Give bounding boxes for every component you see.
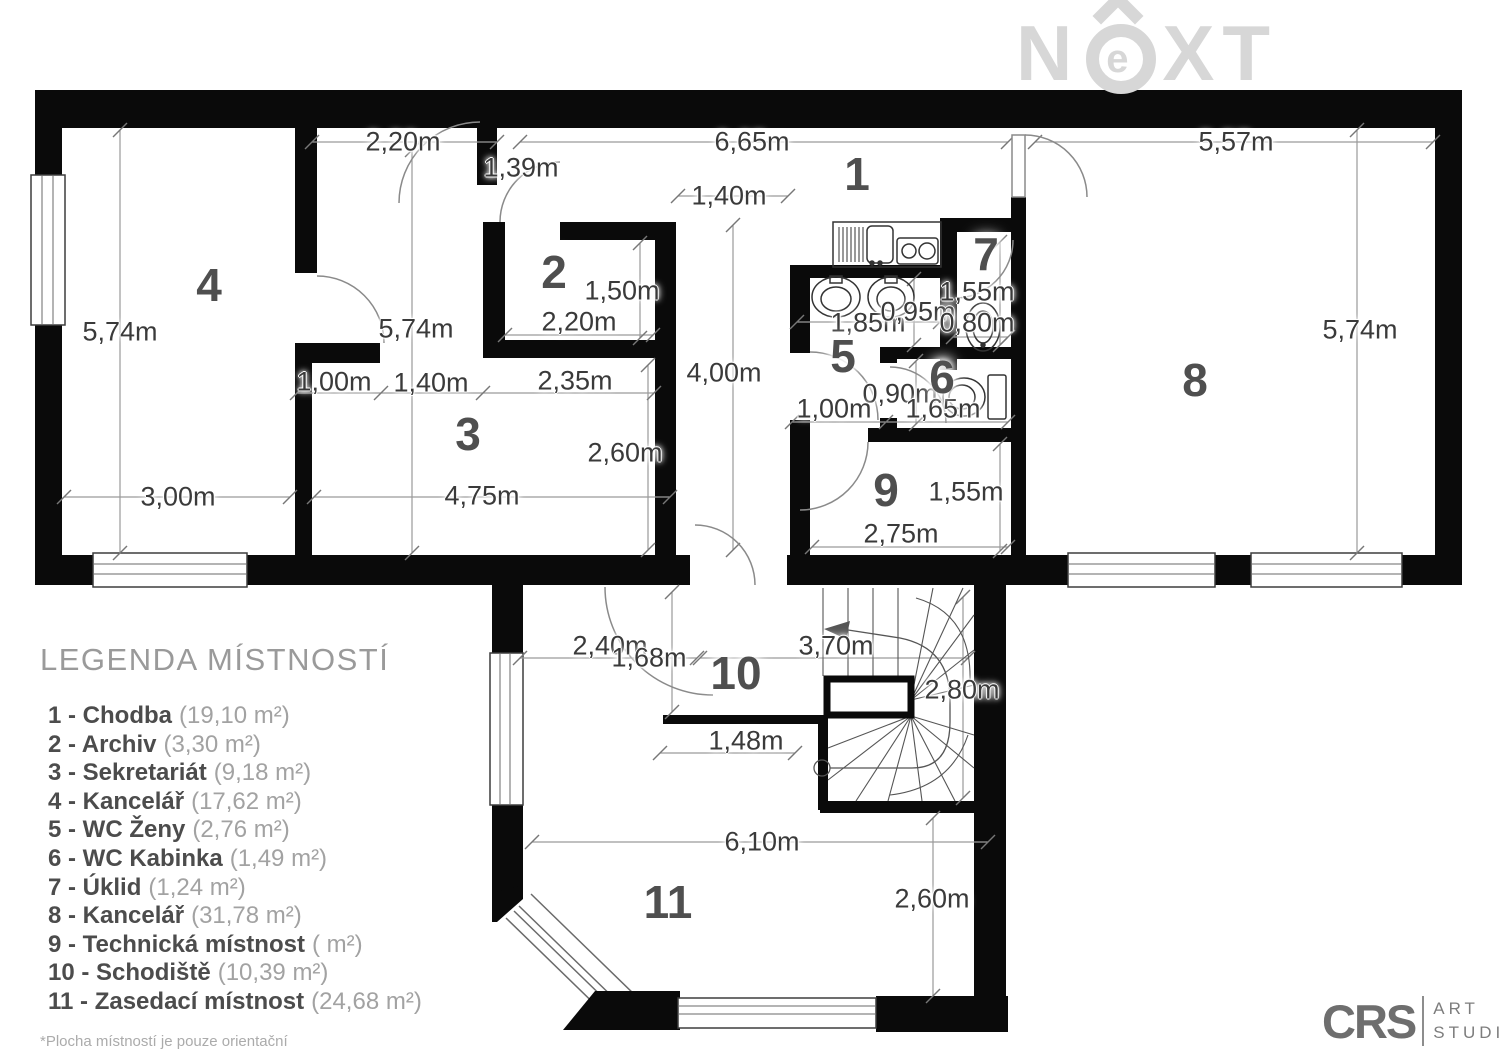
utility-sink-icon: [966, 303, 1000, 351]
legend-item-area: (24,68 m²): [311, 988, 422, 1015]
legend-item: 3 - Sekretariát(9,18 m²): [48, 759, 422, 788]
toilet-icon: [943, 375, 1006, 419]
legend-item: 7 - Úklid(1,24 m²): [48, 874, 422, 903]
next-circle-e-icon: e: [1086, 24, 1156, 94]
next-logo-e-mark: e: [1086, 24, 1156, 94]
legend-item: 2 - Archiv(3,30 m²): [48, 731, 422, 760]
next-watermark-logo: N e XT: [1016, 14, 1278, 92]
legend-item-label: 10 - Schodiště: [48, 959, 211, 986]
next-logo-xt: XT: [1162, 14, 1278, 92]
legend-item-area: (10,39 m²): [218, 959, 329, 986]
legend-item-label: 7 - Úklid: [48, 874, 141, 901]
legend-item-label: 1 - Chodba: [48, 702, 172, 729]
legend-item-area: ( m²): [312, 931, 363, 958]
legend-item: 5 - WC Ženy(2,76 m²): [48, 816, 422, 845]
outer-walls: [35, 90, 1462, 585]
crs-art-studio-logo: CRS ART STUDIO: [1322, 996, 1500, 1046]
door-swings: [317, 122, 1087, 695]
legend-item-label: 4 - Kancelář: [48, 788, 184, 815]
washbasin-icons: [812, 276, 914, 317]
legend-item-label: 11 - Zasedací místnost: [48, 988, 304, 1015]
legend-item: 6 - WC Kabinka(1,49 m²): [48, 845, 422, 874]
legend-item: 1 - Chodba(19,10 m²): [48, 702, 422, 731]
next-logo-n: N: [1016, 14, 1080, 92]
legend-item-area: (9,18 m²): [214, 759, 311, 786]
legend-item-area: (1,24 m²): [148, 874, 245, 901]
legend-item-area: (19,10 m²): [179, 702, 290, 729]
legend-item-area: (2,76 m²): [192, 816, 289, 843]
interior-walls: [295, 128, 1026, 555]
legend-item-label: 8 - Kancelář: [48, 902, 184, 929]
kitchen-unit-icon: [833, 222, 941, 267]
crs-logo-divider: [1422, 996, 1424, 1046]
legend-item-area: (3,30 m²): [163, 731, 260, 758]
legend-item-label: 2 - Archiv: [48, 731, 156, 758]
legend-item: 8 - Kancelář(31,78 m²): [48, 902, 422, 931]
crs-logo-text: CRS: [1322, 998, 1415, 1045]
legend: LEGENDA MÍSTNOSTÍ 1 - Chodba(19,10 m²) 2…: [40, 642, 422, 1050]
legend-item-area: (31,78 m²): [191, 902, 302, 929]
legend-footnote: *Plocha místností je pouze orientační: [40, 1033, 422, 1050]
crs-logo-art: ART: [1433, 997, 1500, 1021]
floor-plan-page: 2,20m1,39m6,65m1,40m5,57m5,74m5,74m5,74m…: [0, 0, 1500, 1060]
legend-items: 1 - Chodba(19,10 m²) 2 - Archiv(3,30 m²)…: [48, 702, 422, 1017]
legend-item: 9 - Technická místnost( m²): [48, 931, 422, 960]
staircase: [823, 588, 974, 801]
crs-logo-studio: STUDIO: [1433, 1021, 1500, 1045]
legend-item: 4 - Kancelář(17,62 m²): [48, 788, 422, 817]
legend-item-area: (1,49 m²): [230, 845, 327, 872]
legend-item-label: 5 - WC Ženy: [48, 816, 185, 843]
legend-item-label: 3 - Sekretariát: [48, 759, 207, 786]
legend-title: LEGENDA MÍSTNOSTÍ: [40, 642, 422, 678]
crs-logo-subtext: ART STUDIO: [1433, 997, 1500, 1045]
legend-item: 10 - Schodiště(10,39 m²): [48, 959, 422, 988]
legend-item-label: 6 - WC Kabinka: [48, 845, 223, 872]
legend-item-area: (17,62 m²): [191, 788, 302, 815]
legend-item: 11 - Zasedací místnost(24,68 m²): [48, 988, 422, 1017]
legend-item-label: 9 - Technická místnost: [48, 931, 305, 958]
